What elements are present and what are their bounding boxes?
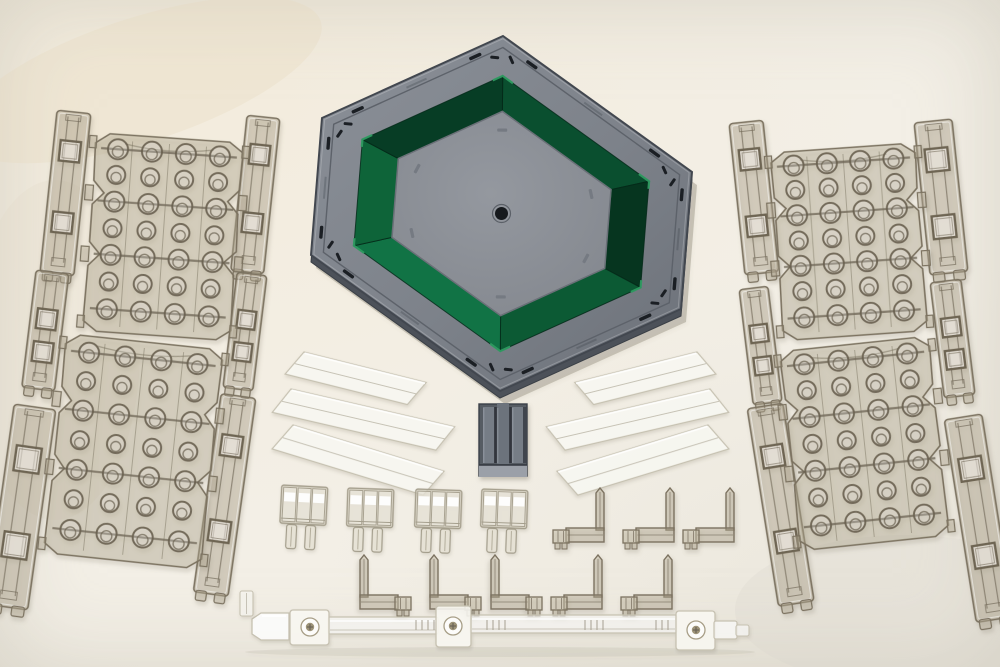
- clip-peg-line: [492, 530, 493, 550]
- rail-socket: [753, 356, 772, 375]
- connector-groove: [509, 407, 512, 463]
- panel-corner-tab: [928, 339, 936, 352]
- panel-side-tab: [84, 185, 93, 201]
- clip-peg-line: [445, 531, 446, 551]
- bracket-sleeve: [553, 530, 569, 543]
- clip-rib-highlight: [418, 496, 429, 505]
- panel-left-bottom: [36, 333, 230, 570]
- clip-rib-highlight: [447, 497, 458, 506]
- rail-socket: [941, 317, 962, 338]
- panel-hole: [171, 223, 190, 242]
- connector-groove: [494, 407, 497, 463]
- rail-foot: [0, 603, 2, 615]
- panel-hole: [167, 277, 186, 296]
- panel-hole: [107, 165, 126, 184]
- panel-side-tab: [767, 203, 776, 219]
- panel-right-bottom: [772, 335, 956, 551]
- rail-foot: [979, 618, 992, 630]
- panel-hole: [856, 226, 875, 245]
- rail-foot: [946, 395, 956, 406]
- panel-hole: [819, 178, 838, 197]
- arm-end-peg: [714, 621, 737, 639]
- rail-socket: [945, 349, 966, 370]
- rail-foot: [800, 599, 812, 611]
- panel-hole: [893, 275, 912, 294]
- l-bracket-lower: [491, 555, 542, 616]
- panel-hole: [789, 231, 808, 250]
- rail-socket: [220, 434, 244, 458]
- panel-side-tab: [784, 466, 794, 482]
- rail-socket: [51, 211, 73, 233]
- panel-side-tab: [215, 408, 225, 424]
- bracket-sleeve-peg: [555, 543, 560, 549]
- panel-left-top: [75, 132, 250, 341]
- rail-foot: [747, 272, 758, 283]
- panel-corner-tab: [947, 520, 955, 533]
- rail-socket: [241, 212, 263, 234]
- blade-group-left: [272, 349, 455, 499]
- scene-svg: [0, 0, 1000, 667]
- panel-corner-tab: [77, 315, 85, 327]
- small-clear-peg: [240, 591, 253, 616]
- panel-side-tab: [921, 250, 930, 266]
- panel-side-tab: [778, 404, 788, 420]
- l-bracket-lower: [621, 555, 672, 616]
- panel-side-tab: [52, 391, 62, 407]
- clip-rib-highlight: [365, 496, 376, 505]
- arm-end-cap: [252, 613, 289, 640]
- hexagonal-display-base: [311, 36, 697, 404]
- center-plate-slot: [497, 128, 507, 131]
- panel-right-top: [763, 142, 935, 341]
- bracket-sleeve-peg: [625, 543, 630, 549]
- panel-hole: [201, 279, 220, 298]
- panel-hole: [885, 173, 904, 192]
- panel-side-tab: [80, 246, 89, 262]
- bracket-sleeve-peg: [692, 543, 697, 549]
- clear-clip: [480, 489, 528, 554]
- connector-base-strip: [479, 465, 527, 477]
- clip-rib: [311, 489, 326, 524]
- rail-socket: [236, 310, 256, 330]
- product-photo: [0, 0, 1000, 667]
- connector-side-shade: [523, 407, 527, 463]
- l-bracket-upper: [553, 488, 604, 549]
- panel-corner-tab: [89, 135, 97, 147]
- clip-rib-highlight: [298, 493, 309, 503]
- connector-rib: [483, 407, 494, 463]
- l-bracket-upper: [623, 488, 674, 549]
- center-plate-slot: [496, 295, 506, 298]
- rail-socket: [749, 324, 768, 343]
- rail-socket: [972, 543, 998, 569]
- clip-rib-highlight: [379, 496, 390, 505]
- panel-hole: [99, 272, 118, 291]
- panel-hole: [852, 176, 871, 195]
- panel-hole: [822, 229, 841, 248]
- clip-rib: [282, 487, 297, 522]
- panel-hole: [786, 180, 805, 199]
- rail-socket: [59, 140, 81, 162]
- connector-rib: [512, 407, 523, 463]
- clip-rib-highlight: [513, 497, 524, 506]
- pole-connector-block: [479, 403, 527, 477]
- panel-hole: [208, 172, 227, 191]
- rail-foot: [23, 385, 34, 396]
- panel-corner-tab: [774, 355, 782, 368]
- clear-clip: [414, 489, 462, 554]
- panel-corner-tab: [926, 315, 934, 327]
- clear-clip: [279, 485, 328, 550]
- rail-socket: [958, 456, 984, 482]
- panel-corner-tab: [793, 536, 801, 549]
- rail-socket: [761, 444, 786, 469]
- panel-hole: [133, 274, 152, 293]
- clip-peg-line: [426, 530, 427, 550]
- panel-side-tab: [234, 257, 243, 273]
- clip-rib-highlight: [350, 495, 361, 504]
- panel-side-tab: [771, 261, 780, 277]
- bracket-sleeve: [623, 530, 639, 543]
- bracket-sleeve-peg: [562, 543, 567, 549]
- rail-socket: [746, 215, 768, 237]
- l-bracket-lower: [360, 555, 411, 616]
- clear-support-arm: [245, 606, 755, 657]
- l-bracket-upper: [683, 488, 734, 549]
- bracket-sleeve-peg: [404, 610, 409, 616]
- clear-clip: [346, 488, 394, 553]
- rail-socket: [739, 148, 761, 170]
- panel-side-tab: [208, 476, 218, 492]
- bracket-sleeve: [526, 597, 542, 610]
- clip-rib-highlight: [313, 494, 324, 504]
- bracket-sleeve-peg: [685, 543, 690, 549]
- panel-hole: [175, 170, 194, 189]
- panel-hole: [826, 279, 845, 298]
- clip-rib-highlight: [499, 497, 510, 506]
- clip-rib-highlight: [284, 492, 295, 502]
- bracket-sleeve-peg: [632, 543, 637, 549]
- panel-side-tab: [45, 459, 55, 475]
- rail-socket: [249, 144, 271, 166]
- panel-side-tab: [917, 192, 926, 208]
- rail-socket: [232, 342, 252, 362]
- rail-right-inner-mid: [739, 286, 783, 413]
- rail-foot: [781, 602, 793, 614]
- panel-hole: [137, 221, 156, 240]
- panel-corner-tab: [242, 146, 250, 158]
- clip-rib-highlight: [484, 496, 495, 505]
- rail-socket: [36, 308, 58, 330]
- panel-corner-tab: [59, 336, 67, 349]
- rail-right-outer-mid: [930, 279, 976, 406]
- panel-hole: [103, 219, 122, 238]
- panel-hole: [889, 224, 908, 243]
- rail-foot: [953, 270, 965, 281]
- clip-peg-line: [377, 530, 378, 550]
- panel-corner-tab: [38, 537, 46, 550]
- panel-corner-tab: [914, 146, 922, 158]
- panel-corner-tab: [200, 554, 208, 567]
- rail-socket: [208, 519, 232, 543]
- rail-foot: [41, 388, 52, 399]
- connector-rib: [497, 403, 509, 464]
- panel-hole: [205, 226, 224, 245]
- panel-corner-tab: [776, 326, 784, 338]
- clip-rib-highlight: [433, 497, 444, 506]
- panel-side-tab: [238, 195, 247, 211]
- rail-foot: [11, 606, 25, 618]
- bracket-sleeve-peg: [397, 610, 402, 616]
- panel-corner-tab: [764, 156, 772, 168]
- rail-foot: [214, 593, 226, 604]
- bracket-sleeve: [621, 597, 637, 610]
- clip-peg-line: [511, 531, 512, 551]
- clip-peg-line: [358, 529, 359, 549]
- panel-side-tab: [940, 450, 950, 466]
- clip-rib: [296, 488, 311, 523]
- arm-tube: [470, 615, 677, 633]
- arm-tip-peg: [736, 625, 749, 636]
- bracket-sleeve: [395, 597, 411, 610]
- bracket-sleeve: [551, 597, 567, 610]
- bracket-sleeve: [683, 530, 699, 543]
- panel-corner-tab: [221, 353, 229, 366]
- panel-corner-tab: [229, 326, 237, 338]
- center-hole: [495, 207, 508, 220]
- rail-foot: [963, 393, 973, 404]
- panel-hole: [793, 282, 812, 301]
- rail-right-inner-top: [729, 120, 780, 283]
- panel-hole: [141, 168, 160, 187]
- panel-side-tab: [933, 388, 943, 404]
- l-bracket-lower: [551, 555, 602, 616]
- panel-hole: [859, 277, 878, 296]
- rail-foot: [195, 590, 207, 601]
- rail-socket: [32, 341, 54, 363]
